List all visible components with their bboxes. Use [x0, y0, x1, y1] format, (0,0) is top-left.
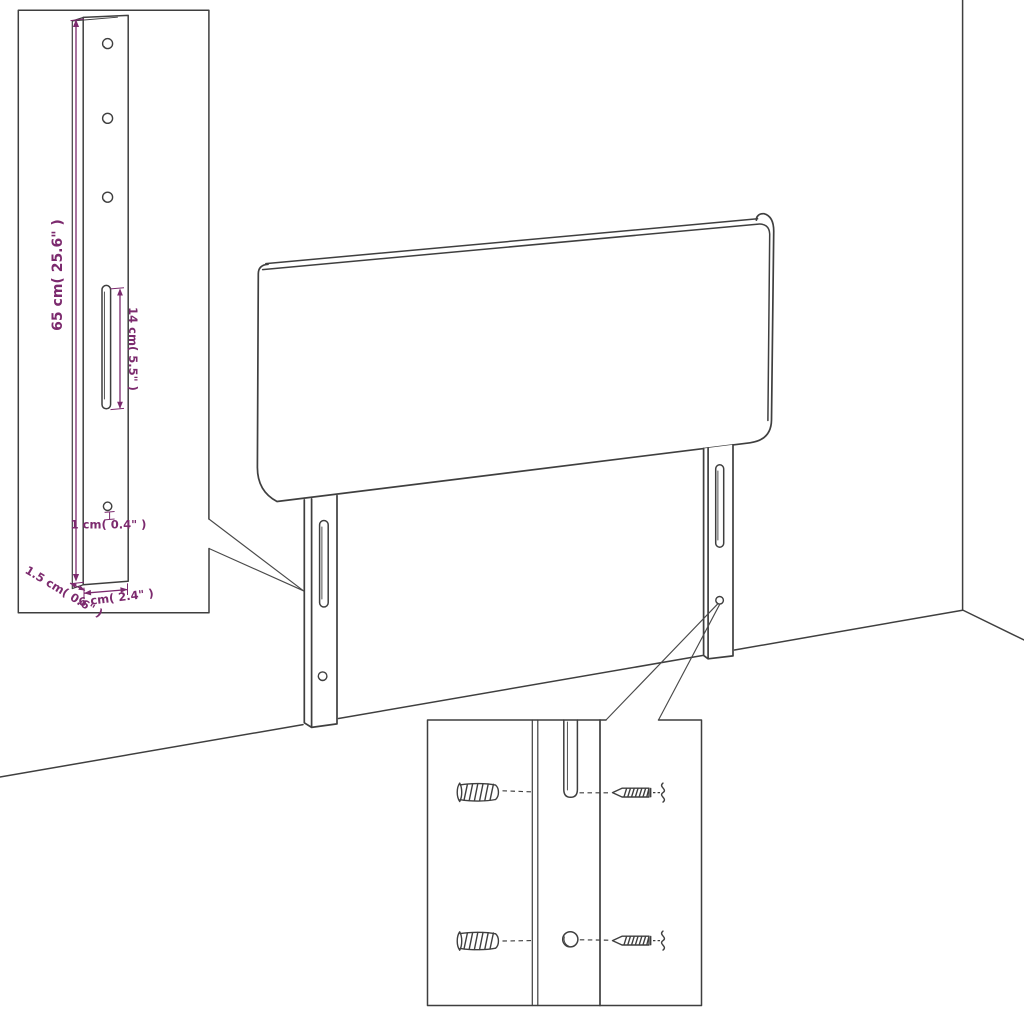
diagram-page: 65 cm( 25.6" ) 14 cm( 5.5" ) 1 cm( 0.4" …: [0, 0, 1024, 1024]
hardware-detail-inset: [428, 720, 702, 1006]
callout-leader-lines: [209, 519, 720, 720]
floor-line-right: [963, 610, 1024, 640]
dimension-slot-label: 14 cm( 5.5" ): [126, 307, 140, 391]
headboard-panel: [257, 214, 773, 502]
leader-hardware-inset-left: [606, 604, 718, 720]
diagram-canvas: 65 cm( 25.6" ) 14 cm( 5.5" ) 1 cm( 0.4" …: [0, 0, 1024, 1024]
dimension-hole-label: 1 cm( 0.4" ): [71, 518, 147, 532]
dimension-height-label: 65 cm( 25.6" ): [50, 219, 66, 331]
left-leg-fill: [304, 496, 337, 728]
left-mounting-bracket: [304, 496, 337, 728]
bracket-detail-inset: 65 cm( 25.6" ) 14 cm( 5.5" ) 1 cm( 0.4" …: [18, 10, 209, 620]
